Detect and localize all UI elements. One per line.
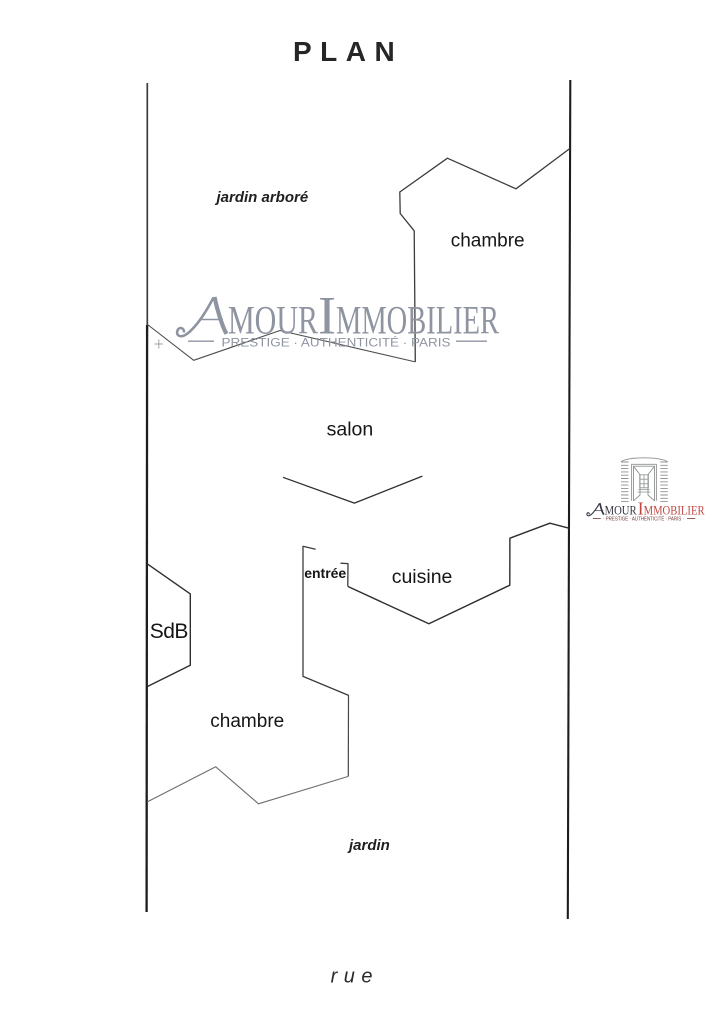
svg-text:chambre: chambre xyxy=(210,711,284,732)
svg-text:MMOBILIER: MMOBILIER xyxy=(336,298,499,343)
svg-text:· PRESTIGE · AUTHENTICITÉ · PA: · PRESTIGE · AUTHENTICITÉ · PARIS · xyxy=(603,515,684,522)
svg-text:jardin: jardin xyxy=(347,837,390,854)
svg-text:rue: rue xyxy=(331,966,379,988)
svg-text:I: I xyxy=(318,286,336,346)
svg-text:MMOBILIER: MMOBILIER xyxy=(644,502,705,517)
svg-text:PRESTIGE · AUTHENTICITÉ · PARI: PRESTIGE · AUTHENTICITÉ · PARIS xyxy=(222,337,451,350)
svg-text:PLAN: PLAN xyxy=(293,36,403,67)
svg-text:chambre: chambre xyxy=(451,231,525,252)
svg-text:SdB: SdB xyxy=(150,620,188,643)
svg-text:jardin arboré: jardin arboré xyxy=(215,189,309,206)
svg-text:salon: salon xyxy=(327,419,374,441)
svg-text:MOUR: MOUR xyxy=(605,502,637,517)
svg-text:MOUR: MOUR xyxy=(228,298,318,343)
svg-text:cuisine: cuisine xyxy=(392,566,453,588)
svg-text:entrée: entrée xyxy=(304,565,346,581)
